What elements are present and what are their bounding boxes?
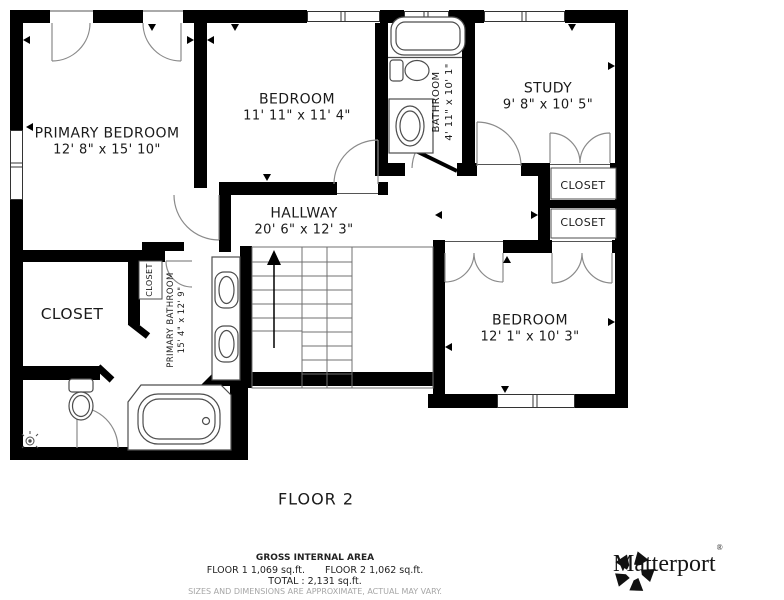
floor-areas: FLOOR 1 1,069 sq.ft. FLOOR 2 1,062 sq.ft… bbox=[207, 565, 423, 576]
wall-right bbox=[615, 10, 628, 408]
stair-direction-arrow bbox=[267, 250, 281, 348]
room-label-study: STUDY 9' 8" x 10' 5" bbox=[503, 79, 593, 114]
wall-closet-divider bbox=[538, 200, 628, 208]
floor2-area: FLOOR 2 1,062 sq.ft. bbox=[325, 565, 423, 576]
room-label-closet-hall: CLOSET bbox=[560, 216, 605, 230]
toilet-icon bbox=[390, 60, 403, 81]
wall-end-caps bbox=[98, 322, 148, 380]
wall-primary-bedroom-right bbox=[194, 10, 207, 188]
room-name: BATHROOM bbox=[430, 63, 443, 141]
room-dims: 9' 8" x 10' 5" bbox=[503, 98, 593, 115]
door-arc-icon bbox=[52, 23, 90, 61]
dimension-tick bbox=[503, 256, 511, 263]
room-name: PRIMARY BATHROOM bbox=[166, 272, 177, 368]
window-icon bbox=[11, 131, 23, 200]
wall-primary-bedroom-bottom bbox=[10, 250, 165, 262]
wall-bedroom-left bbox=[433, 240, 445, 394]
wall-bathroom-left bbox=[375, 10, 388, 176]
dimension-tick bbox=[26, 123, 33, 131]
room-name: STUDY bbox=[503, 79, 593, 97]
room-name: CLOSET bbox=[41, 304, 104, 324]
room-label-closet-small: CLOSET bbox=[145, 263, 155, 296]
room-dims: 12' 1" x 10' 3" bbox=[481, 330, 580, 347]
floor-plan-drawing bbox=[0, 0, 784, 600]
room-name: BEDROOM bbox=[243, 90, 351, 108]
door-arc-icon bbox=[477, 122, 521, 166]
room-label-primary-bedroom: PRIMARY BEDROOM 12' 8" x 15' 10" bbox=[35, 124, 180, 159]
floor-title: FLOOR 2 bbox=[278, 490, 354, 511]
dimension-tick bbox=[148, 24, 156, 31]
floor-plan-page: PRIMARY BEDROOM 12' 8" x 15' 10" BEDROOM… bbox=[0, 0, 784, 600]
dimension-tick bbox=[23, 36, 30, 44]
room-dims: 12' 8" x 15' 10" bbox=[35, 143, 180, 160]
room-name: PRIMARY BEDROOM bbox=[35, 124, 180, 142]
wall-closet-bottom bbox=[10, 366, 100, 380]
dimension-tick bbox=[608, 318, 615, 326]
room-dims: 4' 11" x 10' 1" bbox=[443, 63, 456, 141]
door-arc-icon bbox=[174, 195, 219, 240]
wall-small-closet-front bbox=[142, 242, 184, 251]
double-door-icon bbox=[552, 253, 612, 283]
floor1-area: FLOOR 1 1,069 sq.ft. bbox=[207, 565, 305, 576]
dimension-tick bbox=[568, 24, 576, 31]
room-dims: 20' 6" x 12' 3" bbox=[255, 223, 354, 240]
door-arc-icon bbox=[334, 140, 378, 184]
dimension-tick bbox=[207, 36, 214, 44]
dimension-tick bbox=[501, 386, 509, 393]
room-name: CLOSET bbox=[145, 263, 155, 296]
room-label-closet-primary: CLOSET bbox=[41, 304, 104, 324]
wall-stub bbox=[219, 182, 231, 252]
toilet-icon bbox=[69, 379, 93, 392]
room-label-bedroom-bottom: BEDROOM 12' 1" x 10' 3" bbox=[481, 311, 580, 346]
disclaimer: SIZES AND DIMENSIONS ARE APPROXIMATE, AC… bbox=[188, 587, 442, 596]
dimension-tick bbox=[187, 36, 194, 44]
room-name: CLOSET bbox=[560, 216, 605, 230]
area-heading: GROSS INTERNAL AREA bbox=[256, 553, 374, 563]
double-door-icon bbox=[550, 133, 610, 163]
room-label-closet-study: CLOSET bbox=[560, 179, 605, 193]
room-name: BEDROOM bbox=[481, 311, 580, 329]
window-icon bbox=[485, 12, 565, 22]
dimension-tick bbox=[435, 211, 442, 219]
room-label-hallway: HALLWAY 20' 6" x 12' 3" bbox=[255, 204, 354, 239]
matterport-pinwheel-icon bbox=[613, 551, 655, 593]
room-label-primary-bathroom: PRIMARY BATHROOM 15' 4" x 12' 9" bbox=[166, 272, 188, 368]
door-arc-icon bbox=[143, 23, 181, 61]
matterport-logo: Matterport® bbox=[613, 551, 722, 578]
room-label-bedroom-top: BEDROOM 11' 11" x 11' 4" bbox=[243, 90, 351, 125]
double-door-icon bbox=[445, 253, 503, 282]
registered-mark: ® bbox=[717, 543, 723, 552]
dimension-tick bbox=[445, 343, 452, 351]
dimension-tick bbox=[231, 24, 239, 31]
dimension-tick bbox=[531, 211, 538, 219]
room-dims: 11' 11" x 11' 4" bbox=[243, 109, 351, 126]
total-area: TOTAL : 2,131 sq.ft. bbox=[268, 576, 362, 587]
room-name: CLOSET bbox=[560, 179, 605, 193]
room-name: HALLWAY bbox=[255, 204, 354, 222]
staircase-icon bbox=[252, 247, 433, 388]
dimension-tick bbox=[263, 174, 271, 181]
wall-left bbox=[10, 10, 23, 460]
wall-closet-right bbox=[128, 250, 140, 325]
wall-cap bbox=[98, 367, 112, 380]
window-icon bbox=[308, 12, 380, 22]
shower-head-icon bbox=[22, 431, 38, 448]
room-dims: 15' 4" x 12' 9" bbox=[177, 272, 188, 368]
wall-vanity bbox=[240, 246, 252, 388]
window-icon bbox=[498, 395, 575, 408]
dimension-tick bbox=[608, 62, 615, 70]
room-label-bathroom: BATHROOM 4' 11" x 10' 1" bbox=[430, 63, 456, 141]
